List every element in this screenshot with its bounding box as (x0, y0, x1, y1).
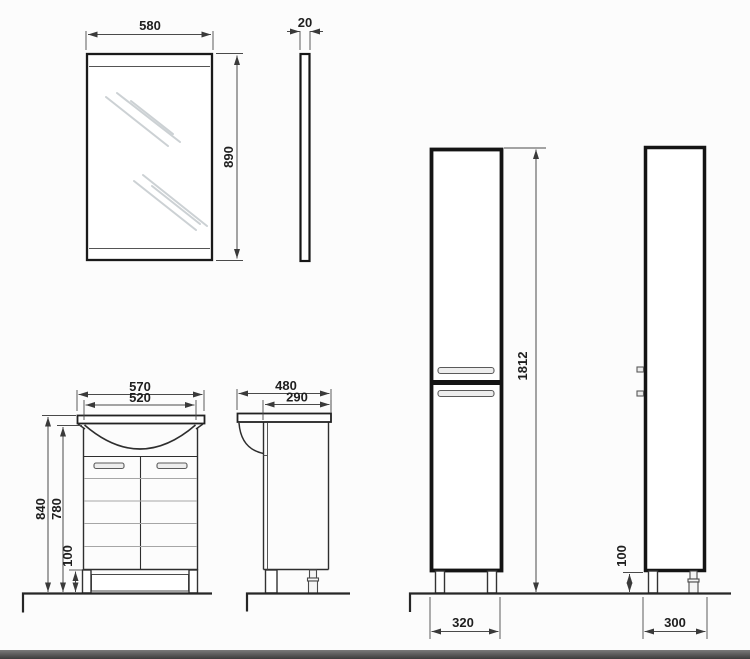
tall-cabinet-front-view: 1812 320 (430, 148, 546, 639)
cabinet-side-body (264, 423, 329, 570)
technical-drawing-page: 580 890 20 5 (0, 0, 750, 659)
dim-label-tall-height: 1812 (515, 352, 530, 381)
right-door-handle (157, 463, 187, 469)
basin-rim (78, 416, 205, 424)
tall-side-upper-handle (637, 367, 644, 372)
dim-tall-height: 1812 (504, 148, 546, 592)
tall-side-adjustable-foot (688, 571, 699, 593)
dim-label-vanity-overall-height: 840 (33, 498, 48, 520)
dim-label-vanity-basin-width: 520 (129, 390, 151, 405)
mirror-front-view: 580 890 (86, 18, 243, 261)
mirror-side-view: 20 (287, 15, 323, 261)
tall-side-lower-handle (637, 391, 644, 396)
dim-label-mirror-thickness: 20 (298, 15, 312, 30)
ground-line-vanity-side (247, 594, 350, 612)
tall-side-front-leg (649, 571, 658, 593)
side-front-leg (266, 570, 278, 593)
dim-label-tall-width: 320 (452, 615, 474, 630)
dim-tall-side-depth: 300 (643, 597, 707, 639)
basin-rim-corners (78, 424, 203, 429)
basin-rim-side (238, 414, 332, 423)
bottom-crop-bar (0, 650, 750, 659)
dim-mirror-height: 890 (216, 54, 243, 261)
dim-label-vanity-body-depth: 290 (286, 390, 308, 405)
tall-lower-door-handle (438, 391, 494, 397)
tall-front-left-leg (436, 571, 445, 593)
dim-vanity-overall-depth: 480 (237, 378, 331, 410)
dim-label-vanity-body-height: 780 (49, 498, 64, 520)
basin-curve (85, 425, 196, 449)
dim-label-vanity-leg-height: 100 (60, 545, 75, 567)
dim-tall-side-leg-height: 100 (614, 545, 643, 592)
vanity-front-view: 570 520 840 780 100 (23, 379, 212, 613)
dim-mirror-thickness: 20 (287, 15, 323, 50)
plinth-panel (92, 575, 189, 592)
vanity-right-leg (189, 570, 198, 593)
dim-tall-width: 320 (430, 597, 500, 639)
vanity-side-view: 480 290 (237, 378, 350, 612)
left-door-handle (94, 463, 124, 469)
ground-line-vanity-front (23, 594, 212, 613)
dim-mirror-width: 580 (86, 18, 213, 50)
mirror-side-profile (301, 54, 310, 261)
side-adjustable-foot (308, 570, 319, 593)
dim-label-mirror-width: 580 (139, 18, 161, 33)
dim-label-mirror-height: 890 (221, 146, 236, 168)
dim-label-tall-side-leg-height: 100 (614, 545, 629, 567)
dim-label-tall-side-depth: 300 (664, 615, 686, 630)
tall-upper-door-handle (438, 368, 494, 374)
tall-cabinet-side-body (646, 148, 705, 571)
ground-line-tall-cabinets (410, 594, 731, 613)
tall-front-right-leg (488, 571, 497, 593)
vanity-left-leg (83, 570, 92, 593)
basin-overhang-curve (239, 423, 264, 454)
furniture-dimension-drawing: 580 890 20 5 (0, 0, 750, 659)
tall-cabinet-body (432, 150, 502, 571)
